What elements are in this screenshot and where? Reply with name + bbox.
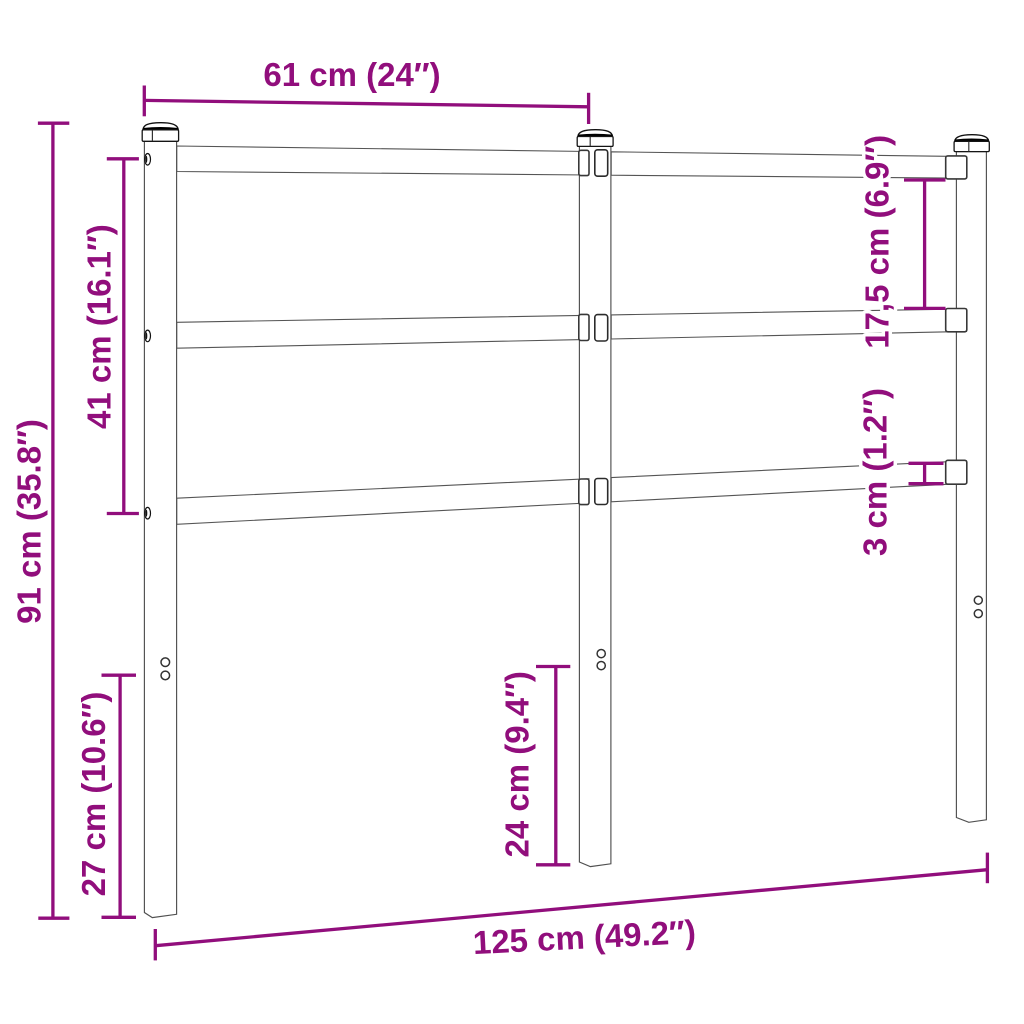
svg-text:27 cm (10.6″): 27 cm (10.6″) — [75, 692, 112, 897]
svg-text:24 cm (9.4″): 24 cm (9.4″) — [499, 671, 536, 857]
svg-text:17,5 cm (6.9″): 17,5 cm (6.9″) — [858, 135, 895, 349]
svg-text:41 cm (16.1″): 41 cm (16.1″) — [81, 224, 118, 429]
svg-text:3 cm (1.2″): 3 cm (1.2″) — [857, 388, 894, 556]
svg-text:91 cm (35.8″): 91 cm (35.8″) — [11, 419, 48, 624]
svg-text:61 cm (24″): 61 cm (24″) — [263, 56, 440, 93]
